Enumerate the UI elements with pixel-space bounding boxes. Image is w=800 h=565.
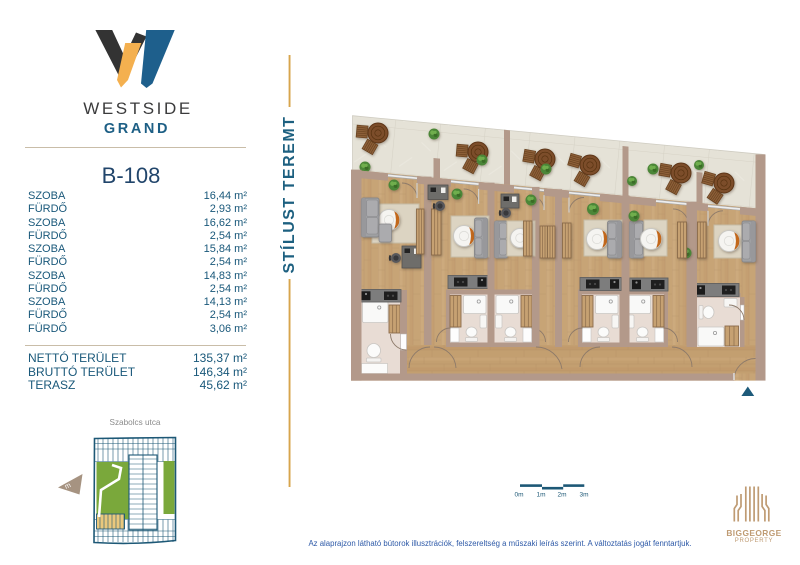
svg-text:STÍLUST TEREMT: STÍLUST TEREMT	[279, 116, 298, 274]
svg-text:3m: 3m	[579, 492, 588, 499]
svg-text:0m: 0m	[514, 492, 523, 499]
svg-text:2m: 2m	[557, 492, 566, 499]
svg-text:1m: 1m	[536, 492, 545, 499]
